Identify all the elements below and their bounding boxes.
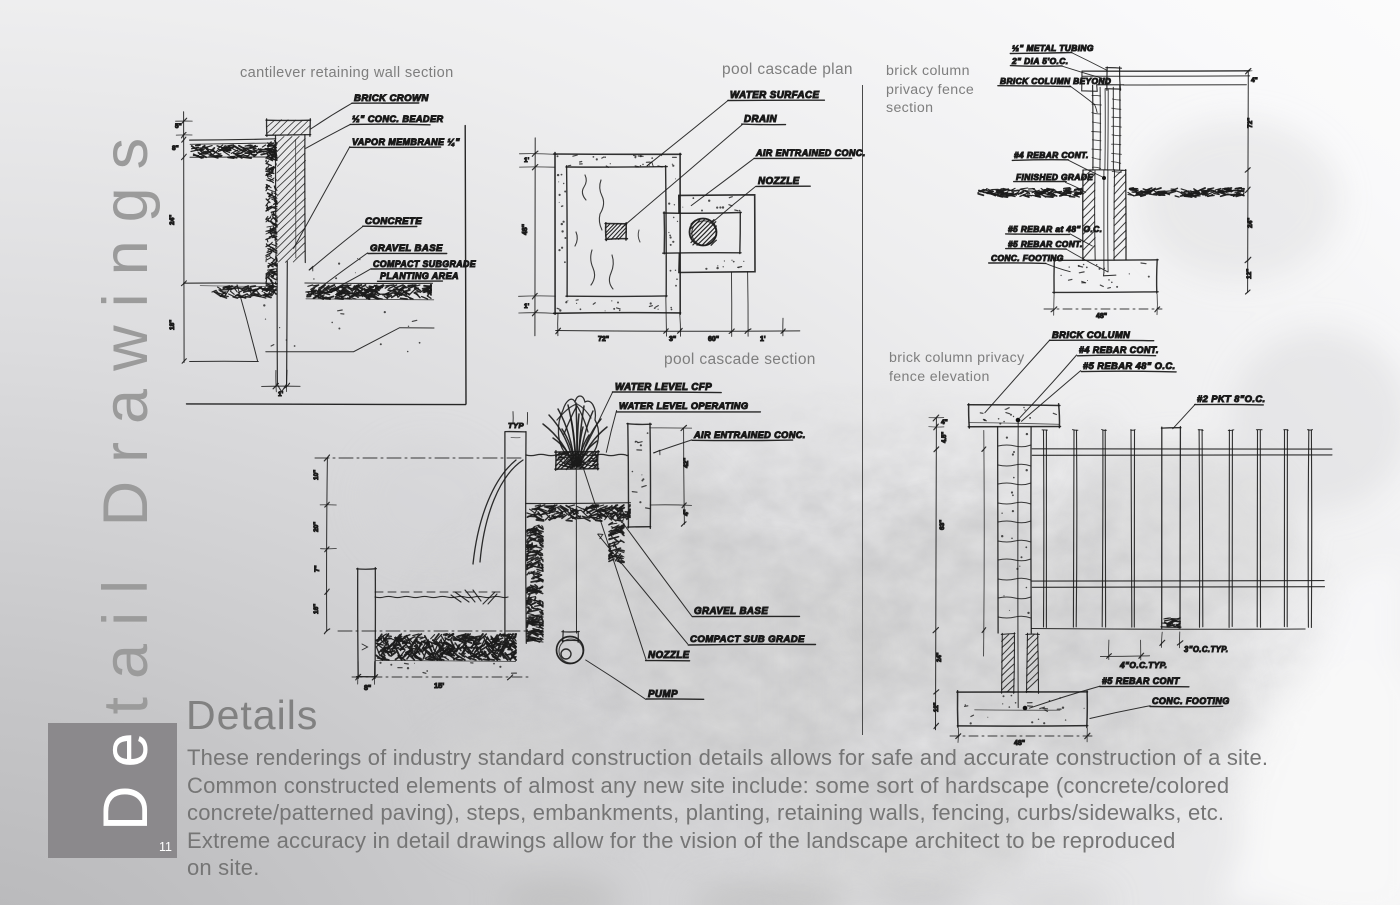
svg-text:1': 1' — [278, 391, 284, 398]
svg-text:12": 12" — [934, 702, 940, 712]
svg-text:AIR ENTRAINED CONC.: AIR ENTRAINED CONC. — [755, 148, 866, 158]
svg-text:4": 4" — [941, 419, 948, 426]
svg-text:4"O.C.TYP.: 4"O.C.TYP. — [1119, 660, 1167, 670]
svg-text:7": 7" — [314, 565, 321, 572]
svg-text:4.5": 4.5" — [942, 432, 948, 443]
svg-text:42": 42" — [683, 458, 690, 468]
svg-text:COMPACT SUBGRADE: COMPACT SUBGRADE — [373, 259, 477, 269]
svg-text:48": 48" — [1014, 740, 1025, 747]
svg-text:5": 5" — [175, 123, 182, 130]
svg-text:CONCRETE: CONCRETE — [365, 216, 422, 227]
svg-text:24": 24" — [1247, 218, 1254, 228]
svg-text:CONC. FOOTING: CONC. FOOTING — [1152, 696, 1230, 706]
svg-text:#2 PKT 8"O.C.: #2 PKT 8"O.C. — [1197, 393, 1266, 404]
svg-text:GRAVEL BASE: GRAVEL BASE — [370, 243, 443, 254]
svg-text:18": 18" — [169, 320, 176, 330]
svg-text:COMPACT SUB GRADE: COMPACT SUB GRADE — [690, 634, 805, 645]
svg-text:4": 4" — [683, 509, 690, 516]
svg-text:#5 REBAR at 48" O.C.: #5 REBAR at 48" O.C. — [1008, 224, 1102, 234]
svg-text:72": 72" — [598, 336, 609, 343]
svg-text:PLANTING AREA: PLANTING AREA — [380, 271, 459, 281]
svg-text:72": 72" — [1247, 118, 1254, 128]
svg-text:DRAIN: DRAIN — [744, 114, 778, 125]
svg-text:NOZZLE: NOZZLE — [648, 650, 690, 661]
svg-text:8": 8" — [364, 685, 371, 692]
svg-text:#5 REBAR CONT.: #5 REBAR CONT. — [1008, 239, 1083, 249]
svg-text:AIR ENTRAINED CONC.: AIR ENTRAINED CONC. — [693, 430, 806, 440]
svg-text:WATER LEVEL OPERATING: WATER LEVEL OPERATING — [619, 401, 748, 411]
svg-text:48": 48" — [1096, 313, 1107, 320]
svg-text:63": 63" — [939, 520, 946, 530]
svg-text:1': 1' — [760, 336, 766, 343]
svg-text:4": 4" — [1251, 77, 1258, 84]
svg-text:BRICK COLUMN: BRICK COLUMN — [1052, 329, 1130, 340]
svg-text:GRAVEL BASE: GRAVEL BASE — [694, 606, 768, 617]
svg-text:½" METAL TUBING: ½" METAL TUBING — [1012, 43, 1094, 53]
svg-text:8": 8" — [172, 145, 179, 152]
svg-text:2" DIA 5'O.C.: 2" DIA 5'O.C. — [1011, 56, 1068, 66]
svg-text:CONC. FOOTING: CONC. FOOTING — [991, 253, 1064, 263]
svg-text:NOZZLE: NOZZLE — [758, 176, 800, 187]
svg-text:#4 REBAR CONT.: #4 REBAR CONT. — [1014, 150, 1089, 160]
svg-text:#5 REBAR 48" O.C.: #5 REBAR 48" O.C. — [1083, 360, 1176, 371]
svg-text:16": 16" — [313, 604, 320, 614]
svg-text:3"O.C.TYP.: 3"O.C.TYP. — [1184, 645, 1228, 654]
svg-text:12": 12" — [1246, 269, 1253, 279]
svg-text:3": 3" — [669, 336, 676, 343]
svg-text:24": 24" — [937, 652, 943, 662]
svg-text:1': 1' — [524, 157, 530, 164]
svg-text:48": 48" — [522, 224, 529, 235]
svg-text:15': 15' — [434, 681, 444, 690]
svg-text:20": 20" — [313, 522, 320, 532]
svg-text:½" CONC. BEADER: ½" CONC. BEADER — [352, 114, 444, 124]
svg-text:24": 24" — [169, 215, 176, 225]
svg-text:#5 REBAR CONT: #5 REBAR CONT — [1102, 676, 1181, 686]
svg-text:#4 REBAR CONT.: #4 REBAR CONT. — [1079, 345, 1159, 355]
svg-text:10": 10" — [313, 470, 320, 480]
svg-text:60": 60" — [708, 336, 719, 343]
svg-text:BRICK COLUMN BEYOND: BRICK COLUMN BEYOND — [1000, 76, 1111, 86]
svg-text:VAPOR MEMBRANE ¼": VAPOR MEMBRANE ¼" — [352, 137, 460, 147]
svg-text:1': 1' — [524, 303, 530, 310]
svg-text:FINISHED GRADE: FINISHED GRADE — [1016, 172, 1093, 182]
svg-text:TYP: TYP — [508, 421, 525, 430]
svg-text:WATER SURFACE: WATER SURFACE — [730, 90, 819, 101]
